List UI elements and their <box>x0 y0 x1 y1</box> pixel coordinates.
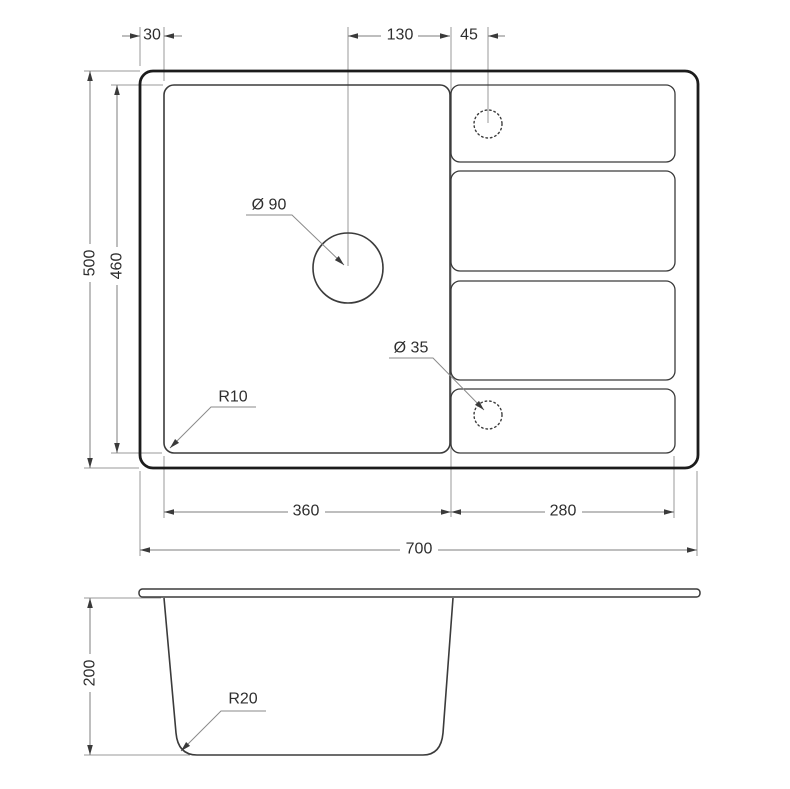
dim-360: 360 <box>164 503 451 521</box>
drain-diameter-text: Ø 90 <box>252 197 287 214</box>
drainboard <box>451 85 675 453</box>
dim-label-360: 360 <box>293 503 320 520</box>
r10-text: R10 <box>218 389 247 406</box>
dim-130: 130 <box>348 27 450 45</box>
dim-45: 45 <box>460 27 505 44</box>
drainboard-row <box>451 389 675 453</box>
drainboard-row <box>451 281 675 380</box>
drainboard-row <box>451 171 675 271</box>
leader-line <box>170 407 256 448</box>
dim-460: 460 <box>109 85 126 453</box>
accessory-hole-circle <box>474 401 502 429</box>
leader-line <box>389 358 484 410</box>
dim-label-460: 460 <box>109 253 126 280</box>
top-view: 30 130 45 500 460 <box>82 27 699 559</box>
drainboard-row <box>451 85 675 162</box>
sink-bowl-rect <box>164 85 450 453</box>
hole-diameter-text: Ø 35 <box>394 340 429 357</box>
dim-label-700: 700 <box>406 541 433 558</box>
bowl-section-profile <box>164 598 453 755</box>
label-hole-diameter: Ø 35 <box>389 340 484 411</box>
sink-rim-profile <box>139 589 700 597</box>
label-bottom-radius-r20: R20 <box>181 691 266 752</box>
dim-700: 700 <box>140 541 697 559</box>
sink-outer-rect <box>140 71 698 468</box>
dim-280: 280 <box>451 503 674 521</box>
side-view: 200 R20 <box>82 589 701 755</box>
dim-500: 500 <box>82 71 99 468</box>
r20-text: R20 <box>228 691 257 708</box>
sink-technical-drawing: 30 130 45 500 460 <box>0 0 790 789</box>
dim-30: 30 <box>122 27 182 44</box>
extension-lines <box>84 27 697 556</box>
dim-label-130: 130 <box>387 27 414 44</box>
label-corner-radius-r10: R10 <box>170 389 256 449</box>
dim-label-500: 500 <box>82 250 99 277</box>
leader-line <box>246 215 344 265</box>
label-drain-diameter: Ø 90 <box>246 197 344 266</box>
dim-200: 200 <box>82 598 99 755</box>
dim-label-45: 45 <box>460 27 478 44</box>
leader-line <box>181 711 266 751</box>
dim-label-30: 30 <box>143 27 161 44</box>
drawing-sheet: 30 130 45 500 460 <box>0 0 790 789</box>
dim-label-280: 280 <box>550 503 577 520</box>
dim-label-200: 200 <box>82 660 99 687</box>
